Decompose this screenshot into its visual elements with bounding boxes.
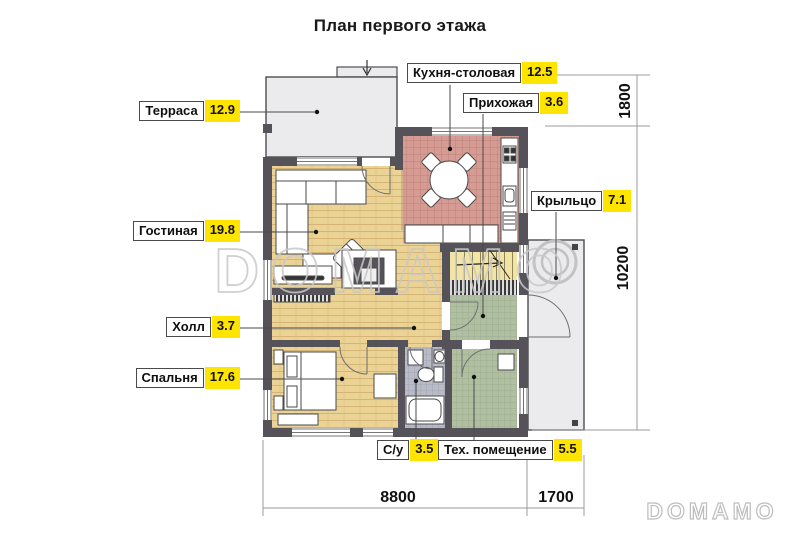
room-area: 12.9 [205, 100, 240, 122]
nightstand [274, 350, 283, 364]
bathtub [406, 396, 444, 424]
room-label-living: Гостиная19.8 [133, 221, 240, 241]
wardrobe [374, 374, 396, 398]
room-area: 3.7 [212, 316, 240, 338]
boiler [498, 354, 514, 370]
room-area: 17.6 [205, 367, 240, 389]
room-name: Кухня-столовая [407, 63, 521, 83]
room-name: Тех. помещение [438, 440, 553, 460]
watermark-center: DOMAMO [214, 237, 575, 306]
terrace-post [263, 124, 272, 133]
dim-house-width: 8800 [380, 489, 416, 506]
floor-plan-page: План первого этажа [0, 0, 800, 533]
watermark-corner: DOMAMO [646, 498, 777, 524]
room-label-terrace: Терраса12.9 [139, 101, 240, 121]
window [297, 157, 357, 166]
room-label-tech: Тех. помещение5.5 [438, 440, 582, 460]
kitchen-appliances [501, 138, 518, 243]
room-area: 3.5 [410, 439, 438, 461]
room-name: Спальня [136, 368, 204, 388]
dim-porch-width: 1700 [538, 489, 574, 506]
room-label-porch: Крыльцо7.1 [531, 191, 631, 211]
room-label-kitchen: Кухня-столовая12.5 [407, 63, 557, 83]
room-label-entry-hall: Прихожая3.6 [463, 93, 568, 113]
room-label-bathroom: С/у3.5 [377, 440, 438, 460]
room-name: Терраса [139, 101, 203, 121]
room-area: 7.1 [603, 190, 631, 212]
sink [434, 350, 445, 363]
room-area: 5.5 [554, 439, 582, 461]
dim-terrace-depth: 1800 [617, 83, 634, 119]
window [519, 168, 528, 213]
room-area: 12.5 [522, 62, 557, 84]
window [363, 428, 393, 437]
porch-post [572, 420, 578, 426]
bed [284, 352, 336, 410]
nightstand [274, 396, 283, 410]
dim-house-depth: 10200 [615, 246, 632, 291]
room-name: Прихожая [463, 93, 539, 113]
window [292, 428, 350, 437]
room-area: 3.6 [540, 92, 568, 114]
room-name: Крыльцо [531, 191, 602, 211]
room-label-hall: Холл3.7 [166, 317, 240, 337]
dresser [278, 414, 318, 425]
terrace-area [263, 60, 397, 157]
window [519, 388, 528, 414]
room-name: Гостиная [133, 221, 204, 241]
window [263, 390, 272, 420]
room-area: 19.8 [205, 220, 240, 242]
room-label-bedroom: Спальня17.6 [136, 368, 240, 388]
room-name: С/у [377, 440, 409, 460]
room-name: Холл [166, 317, 211, 337]
